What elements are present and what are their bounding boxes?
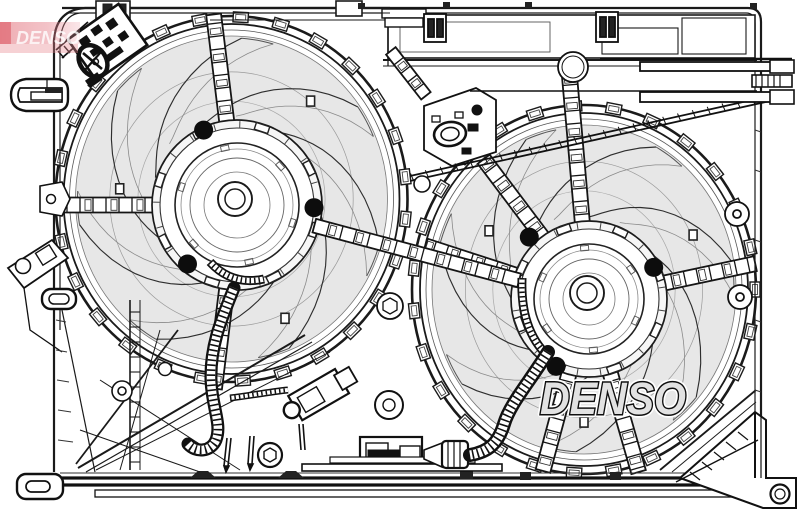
svg-text:DENSO: DENSO: [540, 373, 686, 424]
svg-text:DENSO: DENSO: [16, 28, 80, 48]
